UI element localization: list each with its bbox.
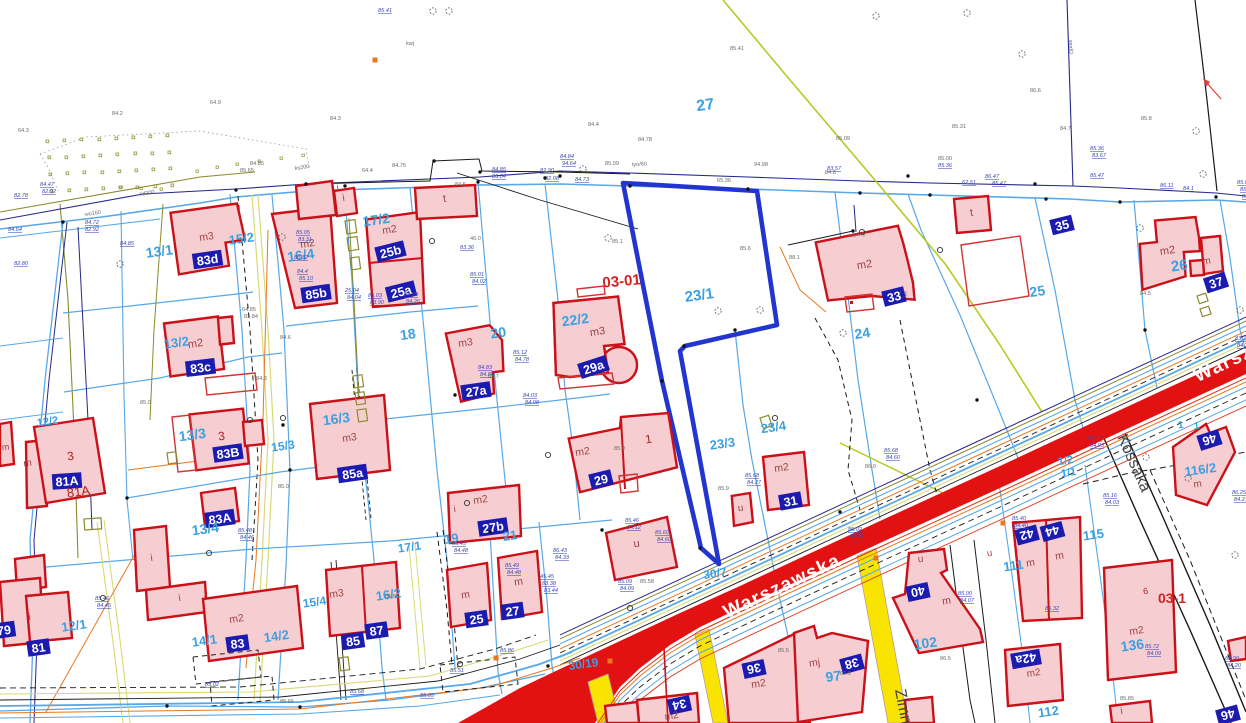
svg-text:85.72: 85.72 xyxy=(1145,644,1160,650)
svg-text:03-1: 03-1 xyxy=(1158,590,1186,606)
svg-text:85.65: 85.65 xyxy=(420,693,435,699)
svg-text:85.32: 85.32 xyxy=(294,255,309,261)
svg-text:85.0: 85.0 xyxy=(614,446,625,452)
svg-text:m3: m3 xyxy=(199,230,215,244)
svg-text:82.92: 82.92 xyxy=(42,189,57,195)
svg-text:85.68: 85.68 xyxy=(350,689,365,695)
svg-text:85.60: 85.60 xyxy=(655,530,670,536)
svg-text:m2: m2 xyxy=(856,258,873,272)
svg-text:83: 83 xyxy=(230,636,246,652)
svg-text:83.31: 83.31 xyxy=(298,237,312,243)
svg-text:64.9: 64.9 xyxy=(210,100,221,106)
svg-text:85.66: 85.66 xyxy=(280,699,294,705)
svg-text:85.01: 85.01 xyxy=(470,272,484,278)
svg-text:m2: m2 xyxy=(774,461,790,475)
svg-text:84.27: 84.27 xyxy=(747,480,762,486)
svg-text:85.12: 85.12 xyxy=(513,350,528,356)
svg-text:64.3: 64.3 xyxy=(18,128,29,134)
svg-text:85.68: 85.68 xyxy=(745,473,760,479)
svg-text:84.99: 84.99 xyxy=(404,292,418,298)
svg-text:26: 26 xyxy=(1170,256,1189,275)
svg-text:84.78: 84.78 xyxy=(515,357,530,363)
svg-text:84.03: 84.03 xyxy=(1090,443,1105,449)
svg-text:82.90: 82.90 xyxy=(540,168,555,174)
svg-text:82.80: 82.80 xyxy=(14,261,29,267)
svg-text:m: m xyxy=(1,442,10,453)
svg-text:m: m xyxy=(1193,478,1203,490)
svg-text:83.44: 83.44 xyxy=(544,588,558,594)
svg-text:85.0: 85.0 xyxy=(140,400,151,406)
svg-text:84.6: 84.6 xyxy=(455,182,466,188)
svg-text:84.48: 84.48 xyxy=(507,570,522,576)
svg-text:84.07: 84.07 xyxy=(960,598,975,604)
svg-text:m2: m2 xyxy=(575,445,591,459)
svg-text:82.78: 82.78 xyxy=(14,193,29,199)
svg-text:85.0: 85.0 xyxy=(278,484,289,490)
svg-text:82.92: 82.92 xyxy=(85,227,100,233)
svg-text:86.43: 86.43 xyxy=(553,548,568,554)
svg-text:m2: m2 xyxy=(751,677,767,691)
svg-text:84.6: 84.6 xyxy=(280,335,291,341)
svg-text:85.41: 85.41 xyxy=(730,46,744,52)
svg-text:84.72: 84.72 xyxy=(85,220,100,226)
svg-text:81: 81 xyxy=(31,640,47,656)
svg-text:102: 102 xyxy=(913,633,939,652)
svg-text:85.09: 85.09 xyxy=(836,136,850,142)
svg-text:85.8: 85.8 xyxy=(1141,116,1152,122)
svg-text:85.1: 85.1 xyxy=(612,239,623,245)
svg-text:wodD: wodD xyxy=(1067,39,1074,54)
svg-text:84.33: 84.33 xyxy=(555,555,570,561)
svg-text:tyo/60: tyo/60 xyxy=(632,161,647,168)
svg-text:85: 85 xyxy=(345,634,361,650)
svg-text:67.0: 67.0 xyxy=(840,671,851,677)
svg-text:84.4: 84.4 xyxy=(588,122,599,128)
svg-text:84.3: 84.3 xyxy=(330,116,341,122)
svg-text:27: 27 xyxy=(695,96,715,115)
svg-text:m3: m3 xyxy=(589,325,606,339)
svg-text:85.9: 85.9 xyxy=(718,486,729,492)
svg-text:82.08: 82.08 xyxy=(545,176,560,182)
svg-text:85.58: 85.58 xyxy=(640,579,654,585)
svg-text:79: 79 xyxy=(0,623,12,639)
svg-text:m2: m2 xyxy=(473,493,489,507)
svg-text:111: 111 xyxy=(1002,557,1024,575)
svg-text:84.7: 84.7 xyxy=(1060,126,1071,132)
svg-text:85.10: 85.10 xyxy=(299,276,314,282)
svg-text:83.38: 83.38 xyxy=(542,581,557,587)
svg-text:84.85: 84.85 xyxy=(120,241,135,247)
svg-text:m3: m3 xyxy=(329,587,345,601)
svg-text:m2: m2 xyxy=(1159,244,1176,258)
svg-text:85.5: 85.5 xyxy=(778,648,789,654)
svg-text:84.83: 84.83 xyxy=(478,365,493,371)
svg-text:85.68: 85.68 xyxy=(884,448,899,454)
svg-text:85.49: 85.49 xyxy=(505,563,519,569)
svg-text:84.48: 84.48 xyxy=(454,548,469,554)
svg-text:85.06: 85.06 xyxy=(1237,180,1246,186)
svg-text:84.12: 84.12 xyxy=(627,525,642,531)
svg-text:83c: 83c xyxy=(189,360,211,376)
svg-text:84.78: 84.78 xyxy=(638,137,652,143)
svg-text:m2: m2 xyxy=(1026,667,1042,680)
svg-text:88.16: 88.16 xyxy=(1088,436,1103,442)
svg-text:64.85: 64.85 xyxy=(242,307,256,313)
svg-text:115: 115 xyxy=(1082,526,1105,544)
svg-text:85.46: 85.46 xyxy=(95,596,110,602)
svg-text:84.8: 84.8 xyxy=(825,170,836,176)
svg-text:85.09: 85.09 xyxy=(618,579,632,585)
svg-text:86.0: 86.0 xyxy=(865,464,876,470)
svg-text:84.02: 84.02 xyxy=(472,279,487,285)
svg-text:85.67: 85.67 xyxy=(1242,194,1246,200)
svg-text:84.60: 84.60 xyxy=(657,537,672,543)
svg-text:85.31: 85.31 xyxy=(952,124,966,130)
svg-text:83.90: 83.90 xyxy=(370,300,385,306)
svg-text:83d: 83d xyxy=(196,252,219,269)
svg-text:40: 40 xyxy=(910,583,927,600)
svg-text:85.48: 85.48 xyxy=(238,528,253,534)
svg-text:112: 112 xyxy=(1037,703,1060,721)
svg-text:45.45: 45.45 xyxy=(540,574,555,580)
svg-text:85.47: 85.47 xyxy=(1090,173,1105,179)
svg-text:85.05: 85.05 xyxy=(296,230,311,236)
svg-text:84.03: 84.03 xyxy=(523,393,538,399)
svg-text:31: 31 xyxy=(783,493,799,509)
svg-text:m: m xyxy=(23,457,33,469)
svg-text:94.64: 94.64 xyxy=(562,161,576,167)
svg-text:64.4: 64.4 xyxy=(362,168,373,174)
svg-text:84.1: 84.1 xyxy=(1183,186,1194,192)
svg-text:85.65: 85.65 xyxy=(240,168,254,174)
svg-text:85.16: 85.16 xyxy=(1103,493,1118,499)
svg-text:18: 18 xyxy=(399,325,417,343)
svg-text:85.00: 85.00 xyxy=(938,156,952,162)
svg-text:87: 87 xyxy=(369,623,385,639)
svg-text:m3: m3 xyxy=(342,431,358,445)
svg-text:85.02: 85.02 xyxy=(848,527,863,533)
svg-text:20: 20 xyxy=(489,324,507,342)
svg-text:m2: m2 xyxy=(1129,624,1145,638)
svg-text:85.41: 85.41 xyxy=(378,8,392,14)
svg-text:84.3: 84.3 xyxy=(256,376,267,382)
svg-text:83.84: 83.84 xyxy=(244,314,258,320)
svg-text:m2: m2 xyxy=(664,710,680,723)
svg-text:85.55: 85.55 xyxy=(385,594,399,600)
svg-text:83.36: 83.36 xyxy=(460,245,475,251)
svg-text:85.6: 85.6 xyxy=(740,246,751,252)
svg-text:84.84: 84.84 xyxy=(560,154,574,160)
svg-text:85.00: 85.00 xyxy=(958,591,973,597)
svg-text:88.1: 88.1 xyxy=(789,255,800,261)
svg-text:85.40: 85.40 xyxy=(1012,516,1027,522)
svg-text:83.77: 83.77 xyxy=(1235,336,1246,342)
svg-text:86.6: 86.6 xyxy=(1030,88,1041,94)
svg-text:84.47: 84.47 xyxy=(40,182,55,188)
svg-text:84.4: 84.4 xyxy=(297,269,308,275)
svg-text:84.5: 84.5 xyxy=(1140,291,1151,297)
svg-text:84.2: 84.2 xyxy=(112,111,123,117)
svg-text:m2: m2 xyxy=(187,337,204,351)
svg-text:85.47: 85.47 xyxy=(992,181,1007,187)
svg-text:84.09: 84.09 xyxy=(1147,651,1161,657)
svg-text:m2: m2 xyxy=(382,223,398,237)
svg-text:84.04: 84.04 xyxy=(347,295,361,301)
svg-text:84.30: 84.30 xyxy=(1237,343,1246,349)
svg-text:85.97: 85.97 xyxy=(1240,187,1246,193)
svg-text:88.90: 88.90 xyxy=(1225,656,1240,662)
svg-text:m3: m3 xyxy=(458,336,474,350)
svg-text:84.60: 84.60 xyxy=(886,455,901,461)
svg-text:65.36: 65.36 xyxy=(717,178,731,184)
svg-text:85.02: 85.02 xyxy=(205,682,220,688)
svg-text:84.46: 84.46 xyxy=(240,535,255,541)
svg-text:84.03: 84.03 xyxy=(1105,500,1120,506)
svg-text:25.04: 25.04 xyxy=(344,288,359,294)
svg-text:84.64: 84.64 xyxy=(8,227,22,233)
svg-text:84.45: 84.45 xyxy=(97,603,112,609)
svg-text:83.84: 83.84 xyxy=(492,174,506,180)
svg-text:85.32: 85.32 xyxy=(1045,606,1060,612)
svg-text:84.73: 84.73 xyxy=(575,177,590,183)
svg-text:36: 36 xyxy=(746,660,763,677)
svg-text:1/1: 1/1 xyxy=(1060,466,1077,480)
svg-text:84.75: 84.75 xyxy=(392,163,406,169)
svg-text:86.5: 86.5 xyxy=(940,656,951,662)
svg-text:85.36: 85.36 xyxy=(938,163,953,169)
svg-text:03-01: 03-01 xyxy=(602,271,642,291)
svg-text:21: 21 xyxy=(502,527,518,544)
svg-text:85.85: 85.85 xyxy=(1120,696,1134,702)
svg-text:m: m xyxy=(1202,255,1212,267)
svg-text:83.67: 83.67 xyxy=(1092,153,1107,159)
svg-text:mj: mj xyxy=(808,656,821,669)
svg-text:86.11: 86.11 xyxy=(1160,183,1174,189)
svg-text:84.09: 84.09 xyxy=(620,586,634,592)
svg-text:m2: m2 xyxy=(229,612,245,626)
svg-text:84.85: 84.85 xyxy=(250,161,264,167)
svg-text:62.51: 62.51 xyxy=(962,180,976,186)
svg-text:24: 24 xyxy=(853,324,871,342)
svg-text:84.85: 84.85 xyxy=(492,167,507,173)
svg-text:85.7: 85.7 xyxy=(488,374,499,380)
svg-text:84.26: 84.26 xyxy=(406,299,421,305)
svg-text:84.20: 84.20 xyxy=(1227,663,1242,669)
svg-text:85.45: 85.45 xyxy=(452,541,467,547)
svg-text:85.46: 85.46 xyxy=(625,518,640,524)
svg-text:27: 27 xyxy=(505,604,521,620)
svg-text:85.09: 85.09 xyxy=(605,161,619,167)
svg-text:85.51: 85.51 xyxy=(450,668,464,674)
svg-text:kwj: kwj xyxy=(406,41,414,47)
svg-text:84.40: 84.40 xyxy=(1014,523,1029,529)
svg-text:84.21: 84.21 xyxy=(1234,497,1246,503)
svg-text:86.25: 86.25 xyxy=(1232,490,1246,496)
svg-text:25: 25 xyxy=(1028,282,1046,300)
svg-text:136: 136 xyxy=(1120,635,1146,654)
svg-text:94.98: 94.98 xyxy=(754,162,768,168)
svg-text:25: 25 xyxy=(469,612,485,628)
svg-text:46.0: 46.0 xyxy=(470,236,481,242)
svg-text:84.09: 84.09 xyxy=(850,534,864,540)
svg-text:85.36: 85.36 xyxy=(1090,146,1105,152)
svg-text:85.86: 85.86 xyxy=(500,648,515,654)
svg-text:85.03: 85.03 xyxy=(368,293,383,299)
svg-text:86.47: 86.47 xyxy=(985,174,1000,180)
svg-text:84.08: 84.08 xyxy=(525,400,540,406)
